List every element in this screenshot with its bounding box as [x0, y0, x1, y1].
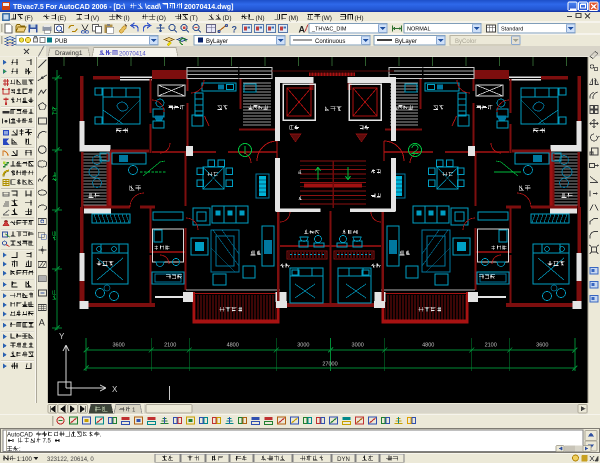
svg-text:3000: 3000 — [297, 343, 309, 349]
svg-text:(O): (O) — [157, 15, 166, 22]
svg-text:?: ? — [232, 25, 238, 35]
svg-text:ByLayer: ByLayer — [206, 39, 228, 45]
svg-text:_THVAC_DIM: _THVAC_DIM — [311, 27, 347, 33]
svg-text:4800: 4800 — [422, 343, 434, 349]
svg-text:3600: 3600 — [112, 343, 124, 349]
svg-text:NORMAL: NORMAL — [407, 27, 431, 33]
svg-text:Y: Y — [59, 332, 65, 341]
svg-text:ByLayer: ByLayer — [395, 39, 417, 45]
svg-text:Continuous: Continuous — [315, 39, 345, 45]
svg-text:3600: 3600 — [536, 343, 548, 349]
svg-text:(T): (T) — [190, 15, 198, 22]
svg-text:1: 1 — [132, 408, 135, 414]
svg-text:(F): (F) — [25, 15, 33, 22]
svg-text:4800: 4800 — [227, 343, 239, 349]
svg-text:PUB: PUB — [55, 39, 67, 45]
svg-text:TBvac7.5 For AutoCAD 2006 - [D: TBvac7.5 For AutoCAD 2006 - [D:\ — [13, 4, 125, 11]
svg-text:2100: 2100 — [164, 343, 176, 349]
svg-text:(W): (W) — [322, 15, 332, 22]
svg-text:(H): (H) — [355, 15, 364, 22]
svg-text:323122, 20614, 0: 323122, 20614, 0 — [47, 457, 94, 463]
svg-text:A: A — [299, 25, 306, 35]
svg-text:(I): (I) — [124, 15, 130, 22]
svg-text:3000: 3000 — [352, 343, 364, 349]
svg-text:Standard: Standard — [501, 27, 523, 33]
svg-text:\cad\: \cad\ — [145, 4, 161, 11]
svg-text:(M): (M) — [289, 15, 299, 22]
svg-text:27000: 27000 — [322, 362, 337, 368]
svg-text:A: A — [39, 317, 45, 327]
svg-text:2100: 2100 — [485, 343, 497, 349]
svg-text:Drawing1: Drawing1 — [55, 50, 83, 57]
svg-text:7.5: 7.5 — [43, 439, 52, 445]
svg-text:(N): (N) — [256, 15, 265, 22]
svg-text:(V): (V) — [91, 15, 100, 22]
svg-text:AutoCAD: AutoCAD — [7, 432, 33, 439]
svg-text:1:100: 1:100 — [17, 457, 33, 463]
svg-text:ByColor: ByColor — [455, 39, 476, 45]
svg-text:(D): (D) — [223, 15, 232, 22]
svg-text:X: X — [112, 385, 118, 394]
svg-text:DYN: DYN — [337, 457, 350, 463]
svg-text:(E): (E) — [58, 15, 67, 22]
svg-text:20070414.dwg]: 20070414.dwg] — [184, 4, 233, 11]
